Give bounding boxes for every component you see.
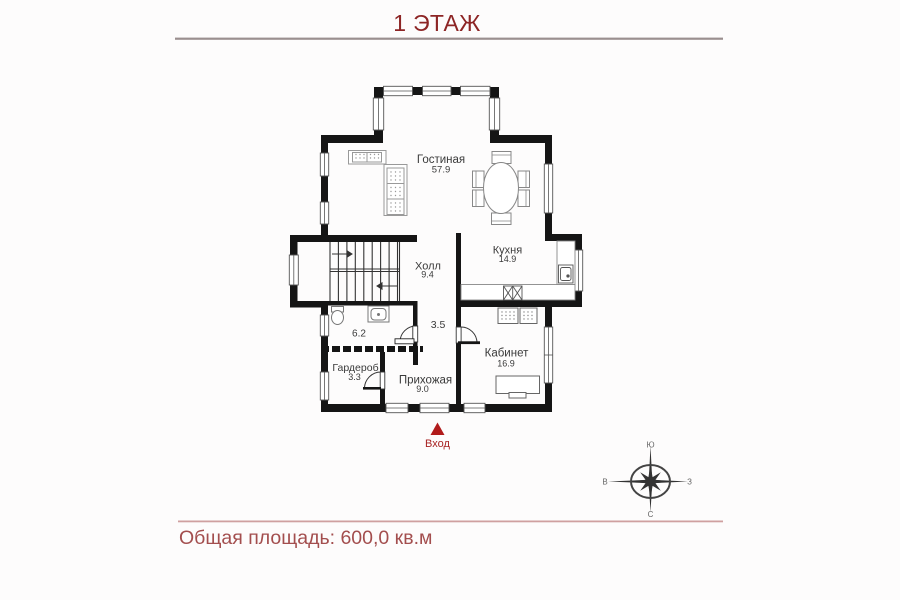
svg-text:14.9: 14.9 [499,254,517,264]
svg-text:В: В [602,478,607,487]
svg-text:Ю: Ю [646,441,654,450]
svg-text:57.9: 57.9 [432,165,451,176]
svg-text:1 ЭТАЖ: 1 ЭТАЖ [393,10,480,36]
svg-text:6.2: 6.2 [352,329,366,340]
svg-text:С: С [648,510,654,519]
svg-text:З: З [687,478,692,487]
svg-text:9.0: 9.0 [416,384,429,394]
svg-text:3.3: 3.3 [348,372,361,382]
svg-text:16.9: 16.9 [497,359,515,369]
svg-text:3.5: 3.5 [431,319,446,331]
svg-text:Вход: Вход [425,438,450,450]
svg-text:Общая площадь: 600,0 кв.м: Общая площадь: 600,0 кв.м [179,527,432,549]
svg-text:9.4: 9.4 [421,270,434,280]
